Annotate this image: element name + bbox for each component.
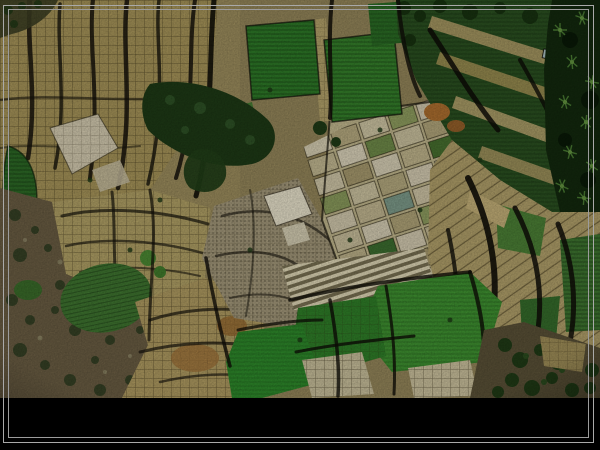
- wallpaper: Terraced fields in Jebel Akhdar, Oman (2…: [0, 0, 600, 450]
- caption-band: Terraced fields in Jebel Akhdar, Oman (2…: [0, 398, 600, 450]
- aerial-photo: [0, 0, 600, 398]
- photo-vignette: [0, 0, 600, 398]
